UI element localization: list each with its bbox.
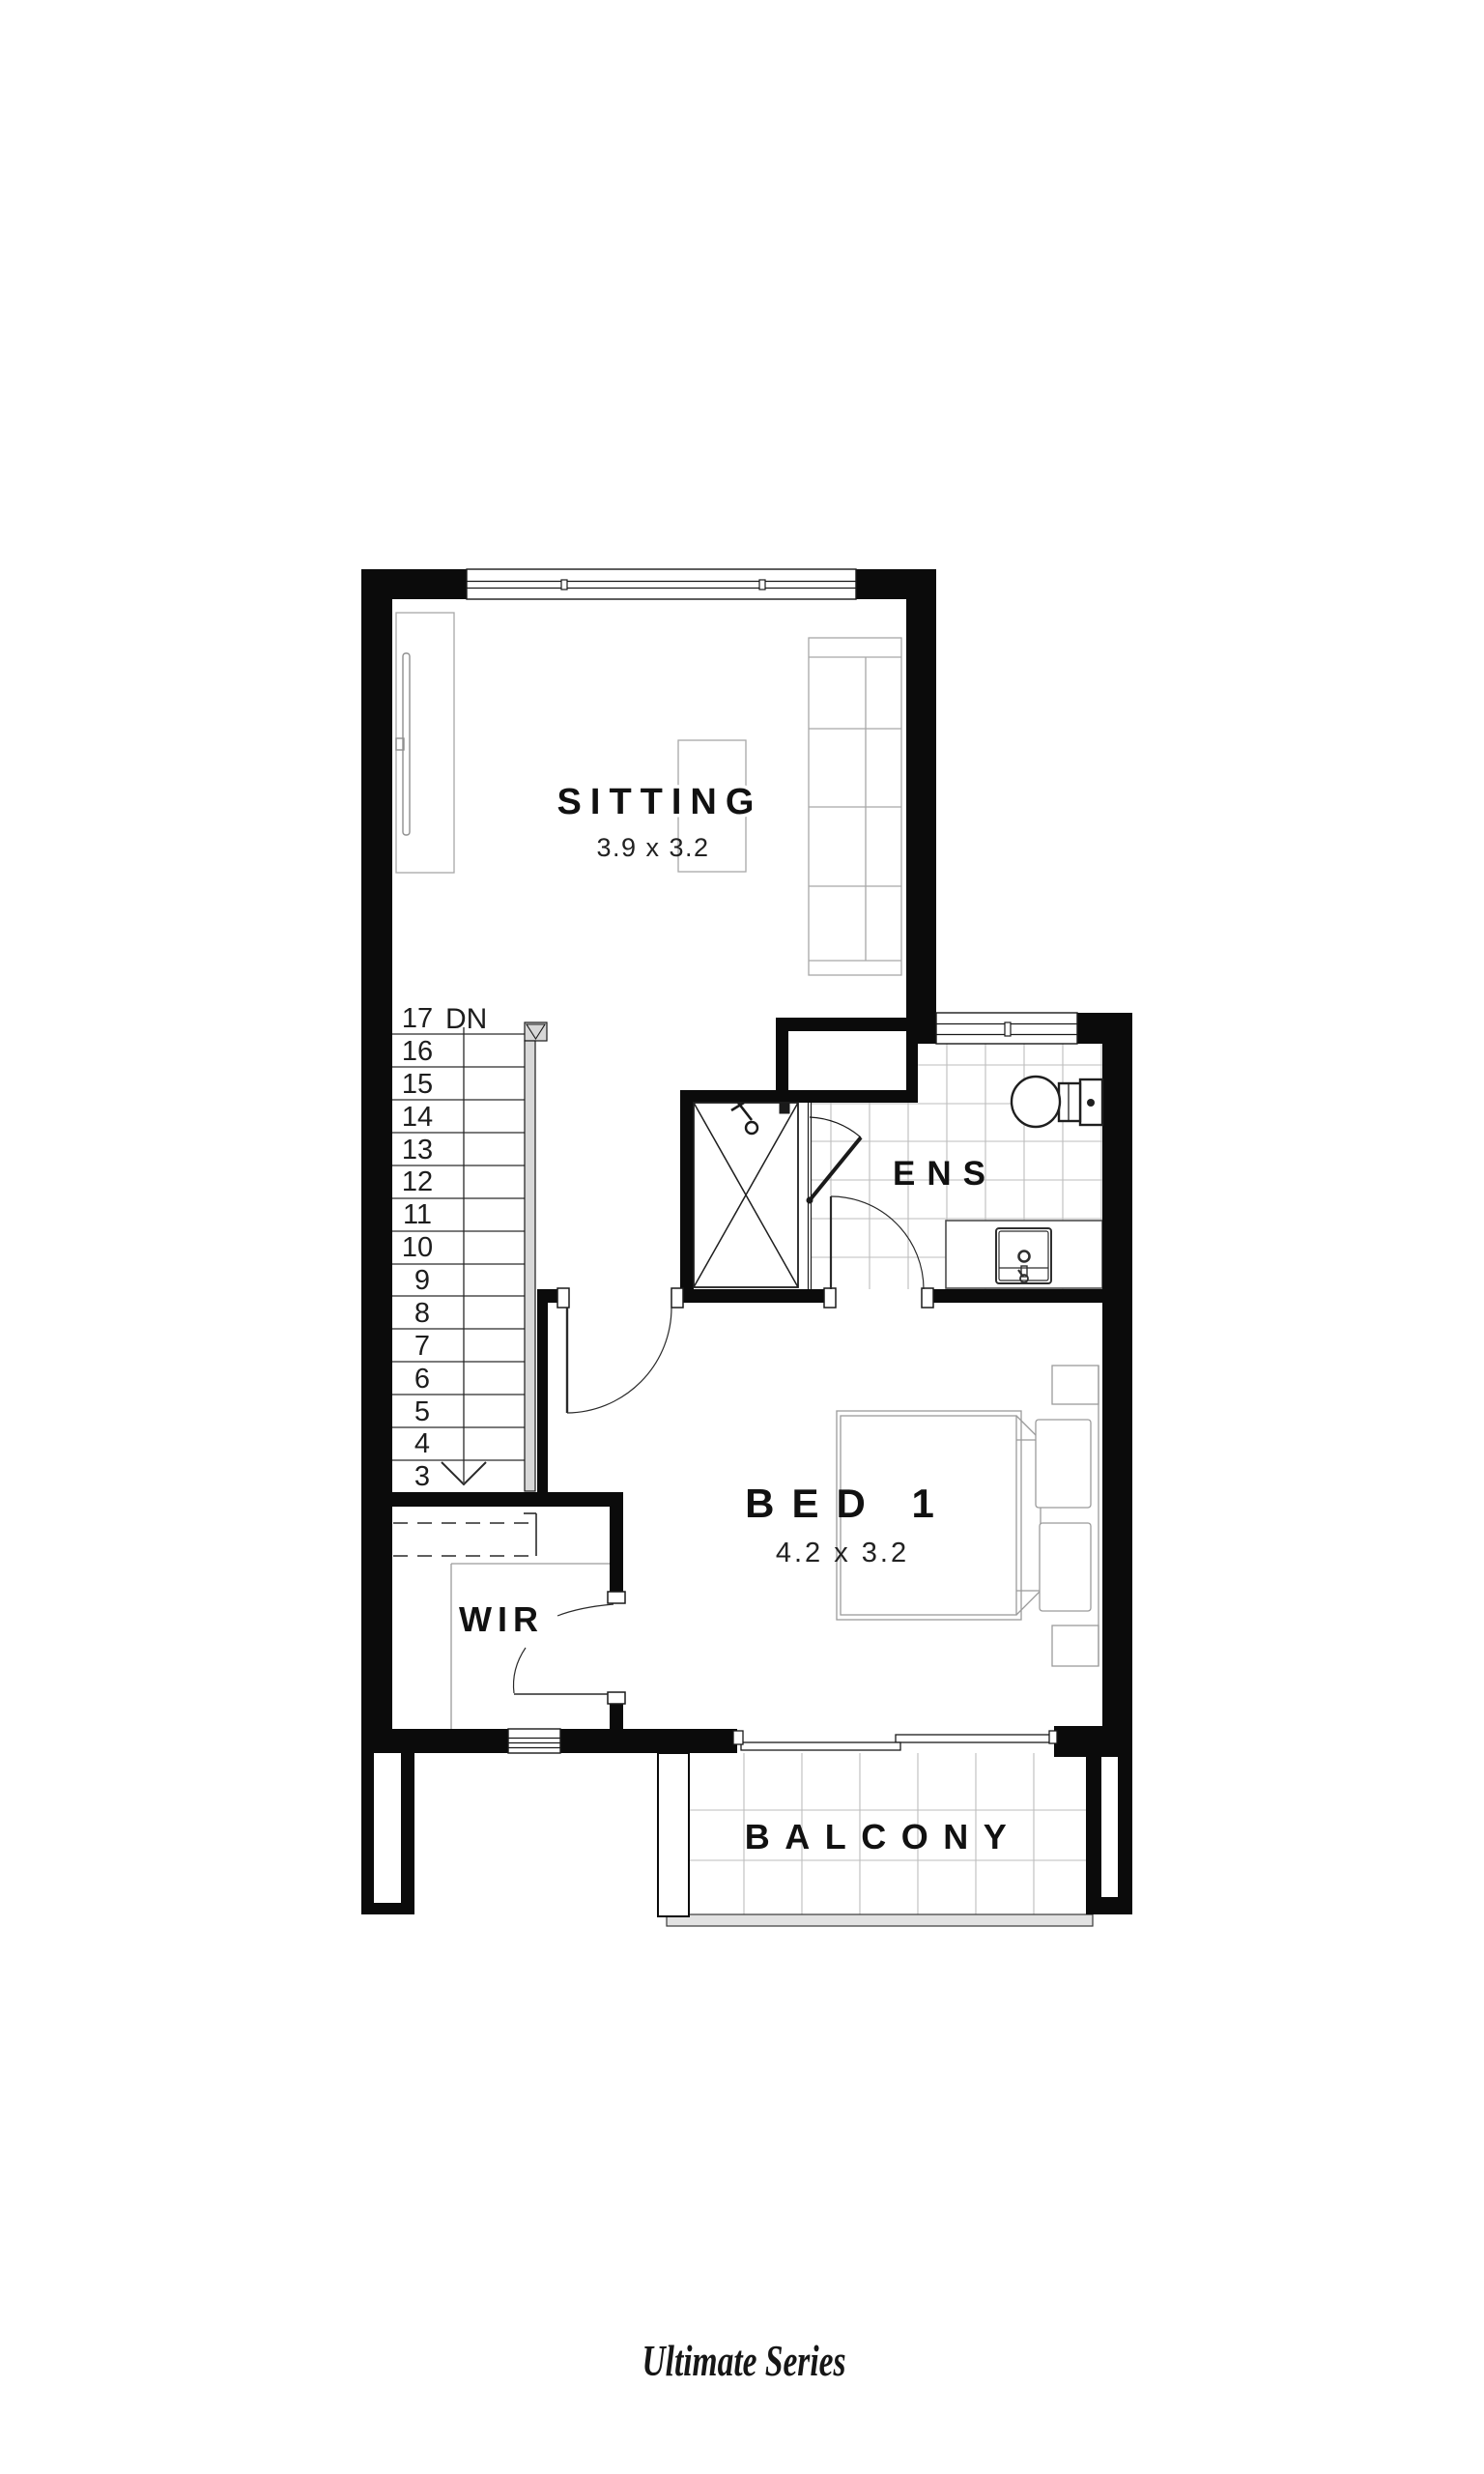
svg-text:4.2 x 3.2: 4.2 x 3.2 (776, 1538, 909, 1568)
svg-text:12: 12 (402, 1166, 433, 1197)
svg-text:6: 6 (414, 1364, 430, 1395)
svg-text:5: 5 (414, 1396, 430, 1427)
svg-text:9: 9 (414, 1265, 430, 1296)
svg-text:ENS: ENS (893, 1155, 997, 1193)
svg-text:WIR: WIR (459, 1599, 544, 1639)
svg-text:SITTING: SITTING (557, 782, 763, 822)
svg-text:7: 7 (414, 1331, 430, 1362)
svg-text:BALCONY: BALCONY (745, 1817, 1022, 1856)
svg-text:4: 4 (414, 1428, 430, 1459)
svg-text:DN: DN (445, 1003, 487, 1035)
svg-text:Ultimate Series: Ultimate Series (642, 2337, 846, 2385)
svg-text:10: 10 (402, 1232, 433, 1263)
svg-text:3: 3 (414, 1461, 430, 1492)
svg-text:15: 15 (402, 1069, 433, 1100)
svg-text:3.9 x 3.2: 3.9 x 3.2 (596, 833, 709, 862)
svg-text:16: 16 (402, 1036, 433, 1067)
svg-text:BED 1: BED 1 (745, 1481, 952, 1526)
svg-text:8: 8 (414, 1298, 430, 1329)
svg-text:17: 17 (402, 1003, 433, 1034)
svg-text:13: 13 (402, 1135, 433, 1165)
svg-text:14: 14 (402, 1102, 433, 1133)
svg-text:11: 11 (403, 1199, 432, 1230)
